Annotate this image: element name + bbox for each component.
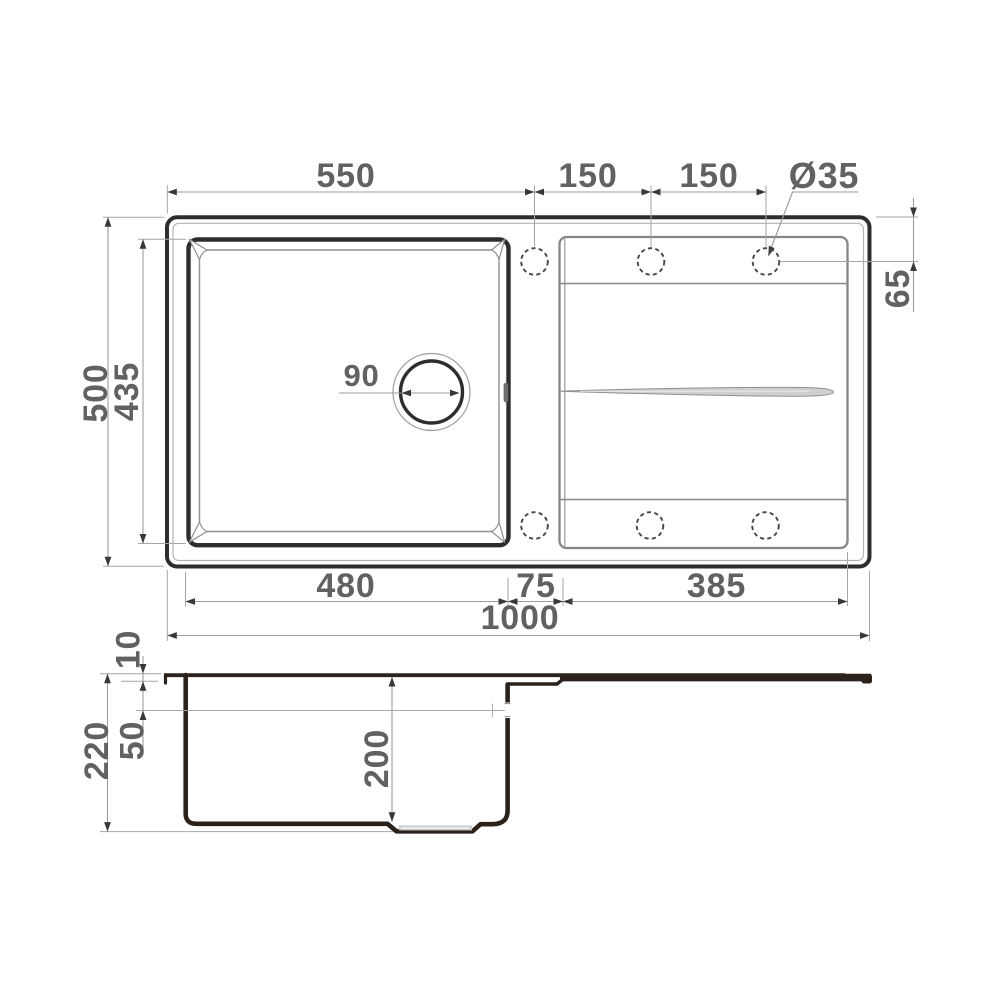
svg-text:550: 550 [316, 157, 375, 195]
svg-text:220: 220 [78, 721, 116, 780]
svg-text:1000: 1000 [481, 599, 560, 637]
svg-text:150: 150 [679, 157, 738, 195]
svg-text:200: 200 [358, 729, 396, 788]
svg-text:50: 50 [114, 721, 152, 760]
svg-text:480: 480 [316, 567, 375, 605]
svg-text:435: 435 [108, 362, 146, 421]
svg-text:90: 90 [343, 358, 379, 393]
svg-text:150: 150 [558, 157, 617, 195]
svg-text:Ø35: Ø35 [789, 155, 859, 196]
svg-text:10: 10 [110, 630, 148, 669]
svg-text:65: 65 [879, 269, 917, 308]
svg-text:385: 385 [687, 567, 746, 605]
